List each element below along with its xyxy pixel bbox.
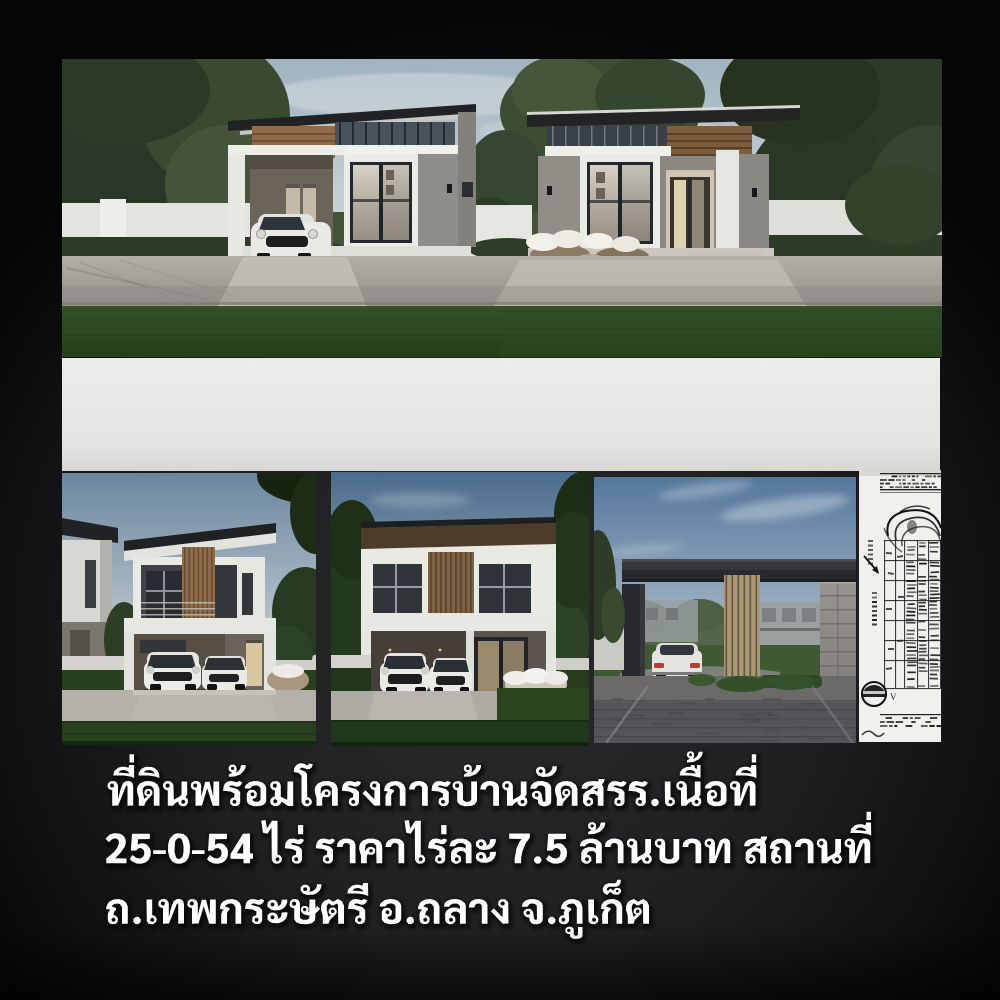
svg-text:V: V [890, 692, 897, 702]
